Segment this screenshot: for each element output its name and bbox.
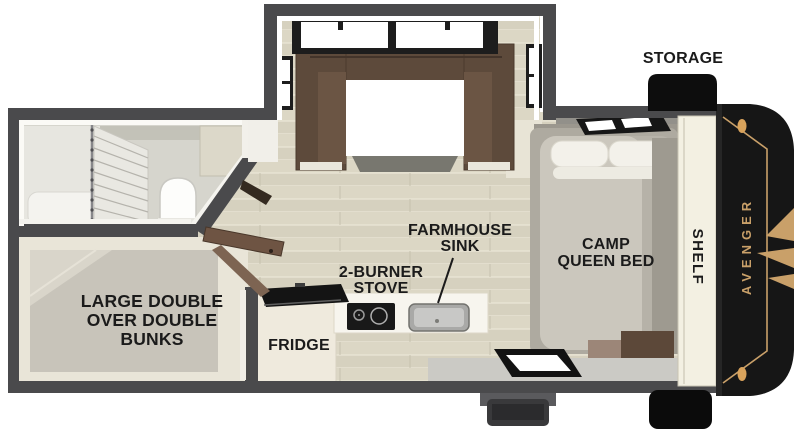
entry-step-tread <box>492 404 544 420</box>
fridge-label: FRIDGE <box>260 338 338 354</box>
cap-marker-light-bottom <box>738 367 747 381</box>
sofa-left-kick <box>300 162 342 170</box>
sink-drain <box>435 319 439 323</box>
brand-label: AVENGER <box>739 186 755 306</box>
lining-bunk-right <box>240 290 246 380</box>
pillow-bolster <box>553 167 663 179</box>
farmhouse-sink-label-line2: SINK <box>402 239 518 255</box>
stove-label: 2-BURNER STOVE <box>330 265 432 297</box>
door-handle <box>269 249 273 253</box>
floorplan-canvas: STORAGE FARMHOUSE SINK 2-BURNER STOVE FR… <box>0 0 800 429</box>
sofa-table <box>346 80 464 156</box>
window-latch-2 <box>445 22 450 30</box>
farmhouse-sink-label-line1: FARMHOUSE <box>402 223 518 239</box>
slide-rear-window-pane-2 <box>396 22 483 48</box>
stove-burner-small-center <box>358 314 360 316</box>
camp-queen-bed-label-line2: QUEEN BED <box>548 253 664 270</box>
sofa-right-kick <box>468 162 510 170</box>
stove-label-line1: 2-BURNER <box>330 265 432 281</box>
camp-queen-bed-label: CAMP QUEEN BED <box>548 236 664 270</box>
fridge-hinge <box>295 283 305 287</box>
wall-bottom <box>8 381 718 393</box>
cap-left-edge <box>716 104 722 396</box>
storage-box <box>648 74 717 111</box>
lining-bath-top <box>19 120 247 125</box>
farmhouse-sink-inner <box>414 308 464 327</box>
bunks-label-line2: OVER DOUBLE <box>72 311 232 330</box>
bunks-label-line3: BUNKS <box>72 330 232 349</box>
lining-slide-corner <box>248 120 278 162</box>
lining-bath-left <box>19 120 24 226</box>
lining-slide-right <box>534 16 539 120</box>
wall-slide-top <box>264 4 556 16</box>
underbody-box <box>649 390 712 429</box>
entry-step <box>480 393 556 426</box>
lining-slide-top <box>277 16 539 21</box>
bunks-label: LARGE DOUBLE OVER DOUBLE BUNKS <box>72 292 232 349</box>
front-cap <box>716 104 794 396</box>
shelf-label: SHELF <box>689 227 705 287</box>
lining-divider-top <box>19 219 191 224</box>
wall-bunk-right <box>245 287 258 387</box>
cap-marker-light-top <box>738 119 747 133</box>
wall-left <box>8 108 19 393</box>
bunks-label-line1: LARGE DOUBLE <box>72 292 232 311</box>
storage-label: STORAGE <box>636 51 730 67</box>
sofa-cushion-right <box>464 72 492 164</box>
slide-rear-window-pane-1 <box>301 22 388 48</box>
wall-slide-right <box>543 4 556 120</box>
sofa-cushion-left <box>318 72 346 164</box>
lining-slide-left <box>277 16 282 120</box>
toilet <box>160 178 196 223</box>
wall-slide-left <box>264 4 277 120</box>
dinette-sofa <box>296 44 514 172</box>
wall-bath-bunk-divider <box>8 224 198 237</box>
pillow-left <box>551 141 608 167</box>
farmhouse-sink-label: FARMHOUSE SINK <box>402 223 518 255</box>
wall-top-left <box>8 108 266 120</box>
stove-label-line2: STOVE <box>330 281 432 297</box>
camp-queen-bed-label-line1: CAMP <box>548 236 664 253</box>
window-latch-1 <box>338 22 343 30</box>
sofa-front-step <box>352 156 458 172</box>
